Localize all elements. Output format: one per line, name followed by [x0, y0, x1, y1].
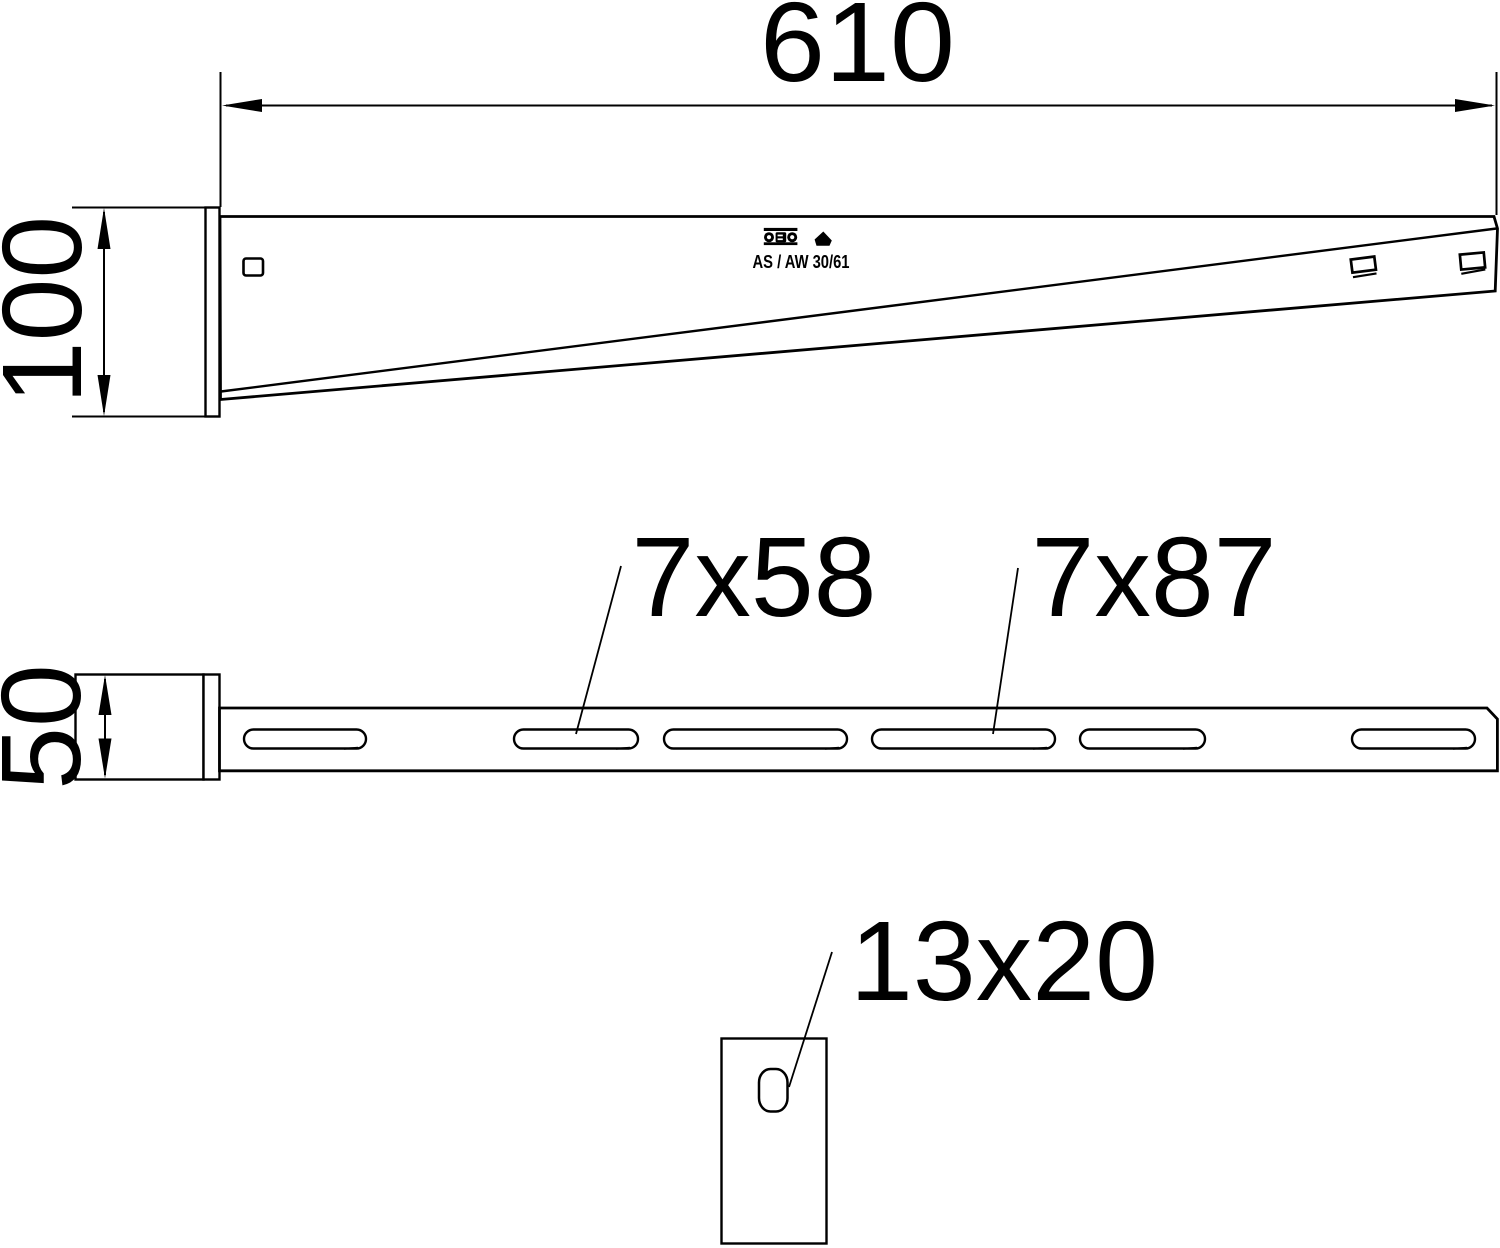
svg-text:50: 50	[0, 664, 104, 790]
svg-text:7x87: 7x87	[1031, 514, 1276, 640]
svg-text:7x58: 7x58	[631, 514, 876, 640]
svg-text:13x20: 13x20	[850, 898, 1158, 1024]
svg-text:100: 100	[0, 216, 105, 405]
svg-text:610: 610	[760, 0, 955, 105]
svg-text:AS / AW 30/61: AS / AW 30/61	[753, 251, 850, 272]
